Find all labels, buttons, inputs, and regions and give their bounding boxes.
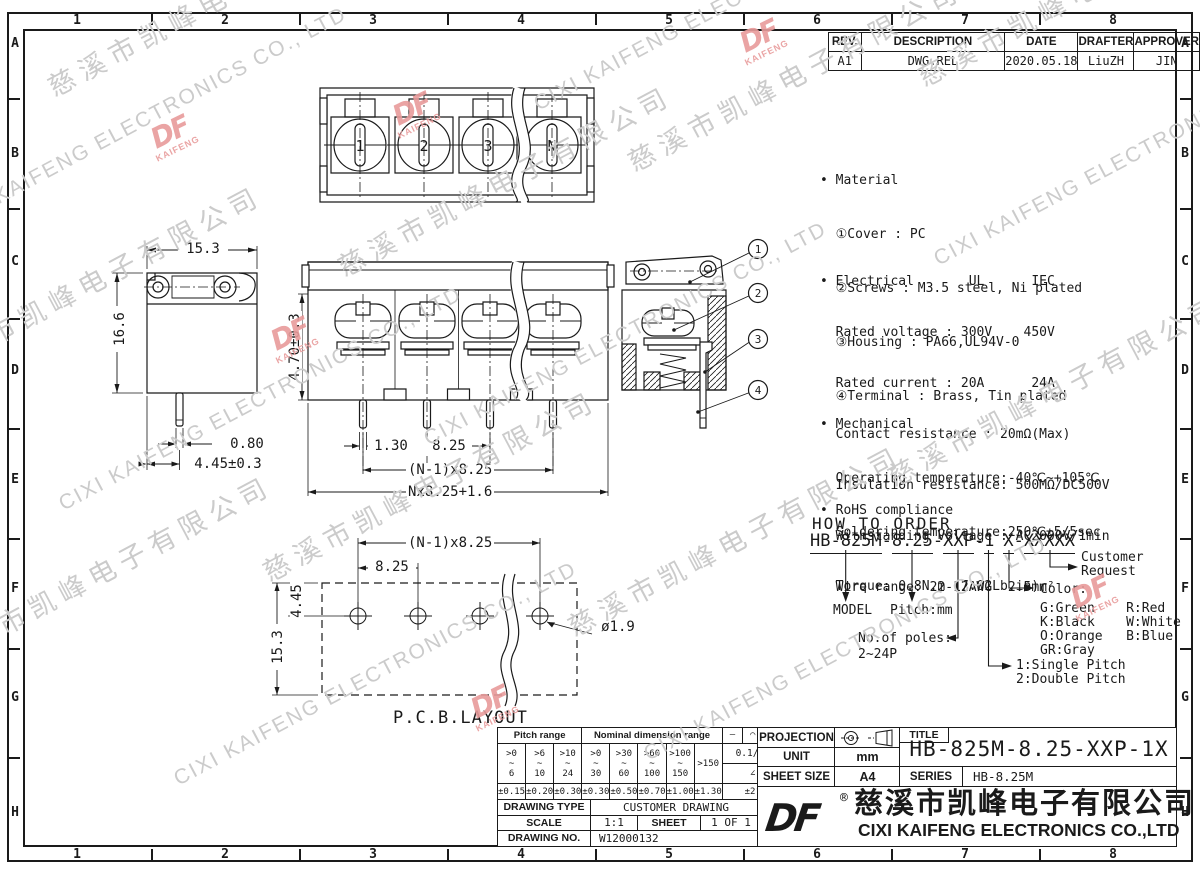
order-label-color-1: G:Green R:Red xyxy=(1040,602,1165,616)
screw-label: 1 xyxy=(355,137,364,155)
frame-tick xyxy=(151,849,153,860)
dim-front-d1: 1.30 xyxy=(368,439,414,453)
frame-tick xyxy=(595,14,597,25)
order-label-double-pitch: 2:Double Pitch xyxy=(1016,673,1126,687)
rev-header: DATE xyxy=(1005,33,1078,52)
balloon-3: 3 xyxy=(755,333,762,346)
grid-row-right: B xyxy=(1177,146,1193,161)
order-sep: - xyxy=(1014,531,1024,551)
tol-value: ±0.30 xyxy=(554,784,582,800)
order-label-single-pitch: 1:Single Pitch xyxy=(1016,659,1126,673)
grid-col-bottom: 4 xyxy=(513,847,529,862)
grid-row-left: E xyxy=(7,472,23,487)
order-label-color-3: O:Orange B:Blue xyxy=(1040,630,1173,644)
frame-tick xyxy=(743,14,745,25)
projection-label: PROJECTION xyxy=(757,727,836,748)
tol-range: >0 ~ 6 xyxy=(498,744,526,784)
frame-tick xyxy=(9,648,20,650)
rev-header: REV. xyxy=(829,33,862,52)
grid-col-top: 8 xyxy=(1105,13,1121,28)
order-label-customer-2: Request xyxy=(1081,565,1136,579)
tol-value: ±1.00 xyxy=(666,784,694,800)
frame-tick xyxy=(1039,849,1041,860)
frame-tick xyxy=(299,14,301,25)
rev-value: 2020.05.18 xyxy=(1005,52,1078,71)
screw-label: 3 xyxy=(483,137,492,155)
dim-front-pitch: 8.25 xyxy=(426,439,472,453)
scale-label: SCALE xyxy=(498,815,591,831)
rev-header: DESCRIPTION xyxy=(861,33,1005,52)
grid-row-left: F xyxy=(7,581,23,596)
frame-tick xyxy=(447,849,449,860)
sheet-size-label: SHEET SIZE xyxy=(757,766,836,787)
tol-range: >6 ~ 10 xyxy=(526,744,554,784)
frame-tick xyxy=(9,208,20,210)
top-view-drawing: 1 2 3 N xyxy=(318,76,604,218)
series-label: SERIES xyxy=(899,766,963,787)
grid-row-left: G xyxy=(7,690,23,705)
company-name-cn: 慈溪市凯峰电子有限公司 xyxy=(854,789,1195,818)
frame-tick xyxy=(1180,538,1191,540)
dim-front-span: (N-1)x8.25 xyxy=(406,463,494,477)
frame-tick xyxy=(151,14,153,25)
grid-row-left: H xyxy=(7,805,23,820)
screw-label: N xyxy=(547,137,556,155)
tol-range: >100 ~ 150 xyxy=(666,744,694,784)
first-angle-projection-icon xyxy=(838,729,898,747)
note-line: Rated voltage : 300V 450V xyxy=(820,324,1110,341)
drawing-type-label: DRAWING TYPE xyxy=(498,800,591,816)
dim-pcb-hole: ø1.9 xyxy=(594,620,642,634)
grid-col-top: 7 xyxy=(957,13,973,28)
frame-tick xyxy=(1180,208,1191,210)
grid-col-top: 5 xyxy=(661,13,677,28)
order-sep: - xyxy=(882,531,892,551)
grid-col-top: 1 xyxy=(69,13,85,28)
drawing-no-value: W12000132 xyxy=(591,831,762,847)
drawing-type-value: CUSTOMER DRAWING xyxy=(591,800,762,816)
balloon-2: 2 xyxy=(755,287,762,300)
frame-tick xyxy=(9,98,20,100)
frame-tick xyxy=(1180,428,1191,430)
series-value: HB-8.25M xyxy=(962,766,1177,787)
frame-tick xyxy=(9,428,20,430)
note-line: • Mechanical xyxy=(820,416,1101,434)
rev-value: JIN xyxy=(1134,52,1200,71)
screw-label: 2 xyxy=(419,137,428,155)
note-line: • Material xyxy=(820,172,1082,190)
grid-col-bottom: 7 xyxy=(957,847,973,862)
dim-side-pin-width: 0.80 xyxy=(223,437,271,451)
grid-row-right: E xyxy=(1177,472,1193,487)
unit-value: mm xyxy=(834,747,901,767)
grid-col-bottom: 6 xyxy=(809,847,825,862)
dim-side-pin-offset: 4.45±0.3 xyxy=(188,457,268,471)
grid-row-right: D xyxy=(1177,363,1193,378)
dim-pcb-span: (N-1)x8.25 xyxy=(406,536,494,550)
tolerance-table: Pitch range Nominal dimension range — ⌒ … xyxy=(497,727,784,800)
balloon-1: 1 xyxy=(755,243,762,256)
company-logo: DF xyxy=(763,799,820,837)
revision-table: REV. DESCRIPTION DATE DRAFTER APPROVER A… xyxy=(828,32,1200,71)
dim-pcb-height: 15.3 xyxy=(271,624,285,670)
sheet-label: SHEET xyxy=(638,815,701,831)
pcb-layout-drawing xyxy=(262,522,622,737)
grid-col-bottom: 3 xyxy=(365,847,381,862)
frame-tick xyxy=(299,849,301,860)
grid-col-top: 3 xyxy=(365,13,381,28)
registered-mark-icon: ® xyxy=(840,791,848,806)
tol-range: >0 ~ 30 xyxy=(582,744,610,784)
grid-row-left: A xyxy=(7,36,23,51)
order-segment-poles: XXP xyxy=(943,531,974,554)
grid-col-top: 6 xyxy=(809,13,825,28)
grid-row-left: C xyxy=(7,254,23,269)
tol-nominal-header: Nominal dimension range xyxy=(582,728,722,744)
pcb-layout-label: P.C.B.LAYOUT xyxy=(393,708,528,728)
tol-value: ±0.15 xyxy=(498,784,526,800)
order-segment-color: X xyxy=(1003,531,1013,554)
grid-col-top: 2 xyxy=(217,13,233,28)
frame-tick xyxy=(891,849,893,860)
projection-symbol-cell xyxy=(834,727,901,748)
rev-value: LiuZH xyxy=(1078,52,1134,71)
order-label-poles-range: 2~24P xyxy=(858,648,897,662)
tol-range: >150 xyxy=(694,744,722,784)
sheet-value: 1 OF 1 xyxy=(701,815,762,831)
rev-value: A1 xyxy=(829,52,862,71)
scale-value: 1:1 xyxy=(591,815,638,831)
grid-row-right: G xyxy=(1177,690,1193,705)
order-label-color-4: GR:Gray xyxy=(1040,644,1095,658)
title-value: HB-825M-8.25-XXP-1X xyxy=(903,735,1175,763)
dim-front-total: Nx8.25+1.6 xyxy=(406,485,494,499)
grid-row-right: C xyxy=(1177,254,1193,269)
rev-value: DWG.REL xyxy=(861,52,1005,71)
frame-tick xyxy=(9,318,20,320)
tol-range: >60 ~ 100 xyxy=(638,744,666,784)
tol-value: ±0.20 xyxy=(526,784,554,800)
order-sep: - xyxy=(974,531,984,551)
order-label-poles: No.of poles: xyxy=(858,632,952,646)
tol-range: >30 ~ 60 xyxy=(610,744,638,784)
grid-col-top: 4 xyxy=(513,13,529,28)
dim-pcb-row: 4.45 xyxy=(290,578,304,624)
order-segment-model: HB-825M xyxy=(810,531,882,554)
section-view-drawing: 1 2 3 4 xyxy=(608,232,808,447)
drawing-sheet: 1 2 3 4 5 6 7 8 1 2 3 4 5 6 7 8 A B C D … xyxy=(0,0,1200,877)
order-label-color-title: Color: xyxy=(1040,583,1087,597)
tol-value: ±0.70 xyxy=(638,784,666,800)
straightness-icon: — xyxy=(723,728,742,743)
rev-header: APPROVER xyxy=(1134,33,1200,52)
company-block: DF ® 慈溪市凯峰电子有限公司 CIXI KAIFENG ELECTRONIC… xyxy=(757,786,1177,847)
drawing-info-table: DRAWING TYPE CUSTOMER DRAWING SCALE 1:1 … xyxy=(497,799,762,847)
dim-side-height: 16.6 xyxy=(113,306,127,352)
company-name-en: CIXI KAIFENG ELECTRONICS CO.,LTD xyxy=(858,822,1180,840)
unit-label: UNIT xyxy=(757,747,836,767)
tol-range: >10 ~ 24 xyxy=(554,744,582,784)
rev-header: DRAFTER xyxy=(1078,33,1134,52)
order-sep: - xyxy=(933,531,943,551)
order-label-pitch: Pitch:mm xyxy=(890,604,953,618)
order-part-number: HB-825M-8.25-XXP-1X-XXXXX xyxy=(810,531,1075,551)
tol-value: ±0.30 xyxy=(582,784,610,800)
order-segment-pitch: 8.25 xyxy=(892,531,933,554)
tol-value: ±0.50 xyxy=(610,784,638,800)
grid-col-bottom: 8 xyxy=(1105,847,1121,862)
dim-side-width: 15.3 xyxy=(178,242,228,256)
grid-col-bottom: 5 xyxy=(661,847,677,862)
frame-tick xyxy=(743,849,745,860)
grid-row-left: B xyxy=(7,146,23,161)
order-segment-customer: XXXXX xyxy=(1024,531,1075,554)
drawing-no-label: DRAWING NO. xyxy=(498,831,591,847)
frame-tick xyxy=(9,538,20,540)
order-label-color-2: K:Black W:White xyxy=(1040,616,1181,630)
frame-tick xyxy=(891,14,893,25)
frame-tick xyxy=(9,757,20,759)
note-line: • Electrical UL IEC xyxy=(820,273,1110,290)
grid-col-bottom: 1 xyxy=(69,847,85,862)
frame-tick xyxy=(1039,14,1041,25)
frame-tick xyxy=(447,14,449,25)
frame-tick xyxy=(595,849,597,860)
order-label-customer-1: Customer xyxy=(1081,551,1144,565)
frame-tick xyxy=(1180,757,1191,759)
order-label-model: MODEL xyxy=(833,604,872,618)
grid-row-left: D xyxy=(7,363,23,378)
grid-col-bottom: 2 xyxy=(217,847,233,862)
frame-tick xyxy=(1180,318,1191,320)
order-segment-pitchtype: 1 xyxy=(984,531,994,554)
dim-pcb-pitch: 8.25 xyxy=(368,560,416,574)
frame-tick xyxy=(1180,98,1191,100)
sheet-size-value: A4 xyxy=(834,766,901,787)
balloon-4: 4 xyxy=(755,384,762,397)
tol-pitch-header: Pitch range xyxy=(498,728,582,744)
tol-value: ±1.30 xyxy=(694,784,722,800)
dim-front-pin-length: 4.70±0.3 xyxy=(288,311,302,383)
